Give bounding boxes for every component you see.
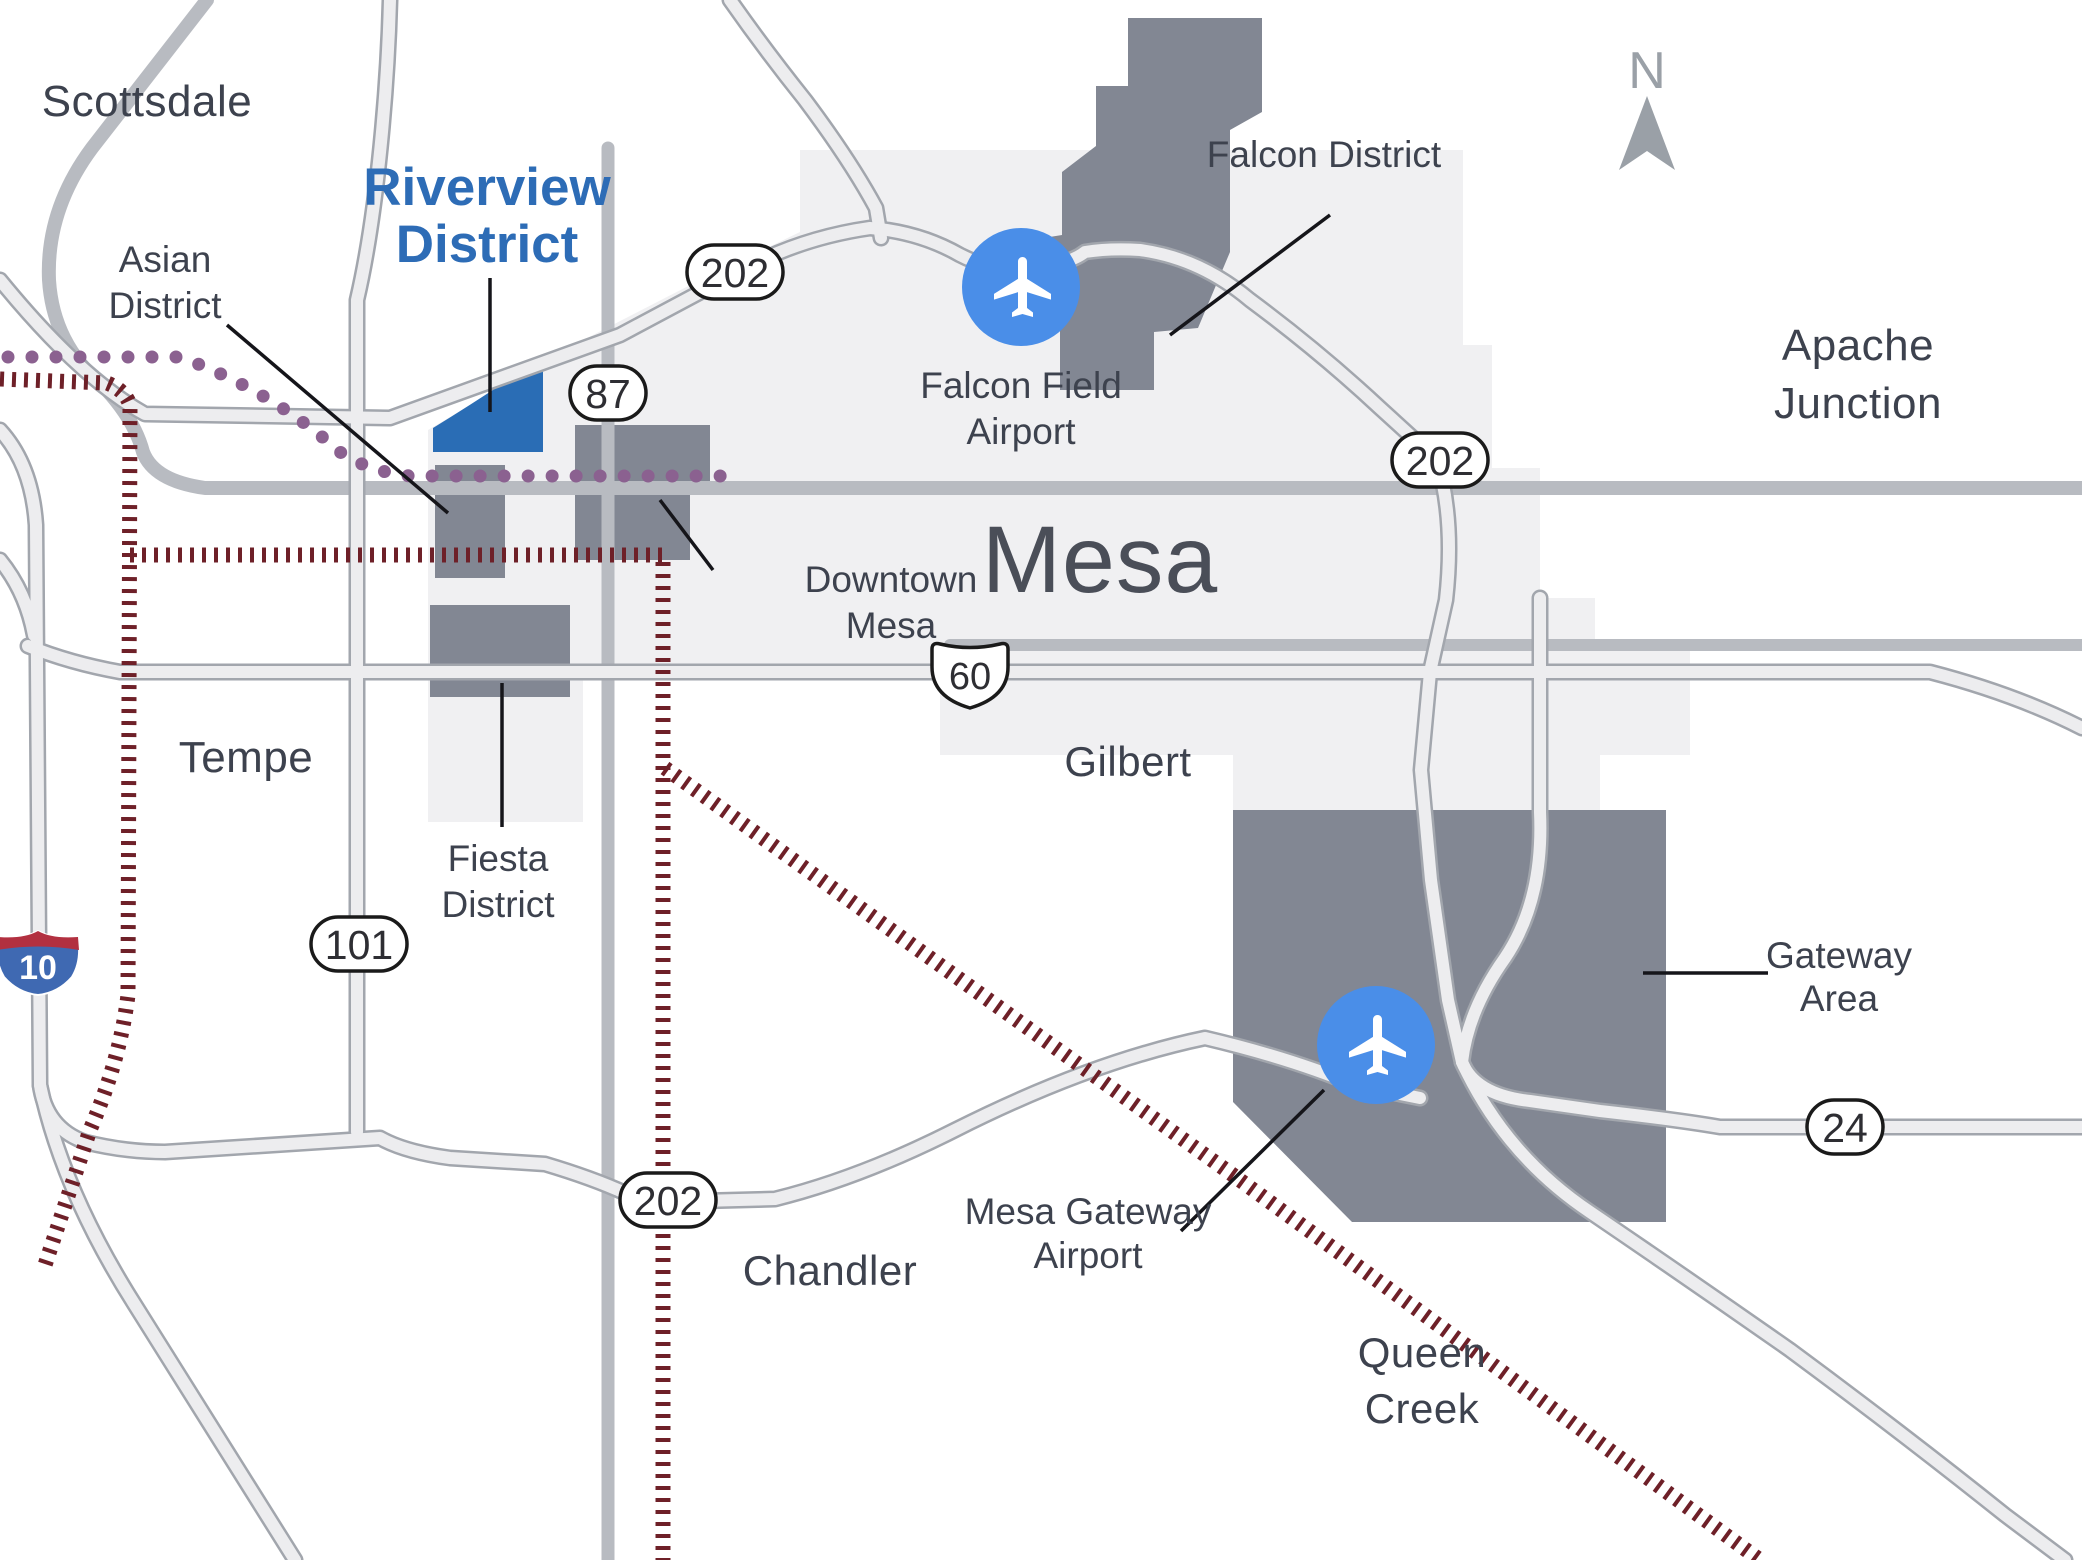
svg-text:87: 87 bbox=[585, 371, 631, 417]
city-label-queen-creek: Queen bbox=[1358, 1329, 1487, 1376]
district-label-downtown-2: Mesa bbox=[846, 605, 937, 646]
district-label-riverview: Riverview bbox=[363, 158, 611, 217]
district-label-fiesta: Fiesta bbox=[448, 838, 549, 879]
city-label-scottsdale: Scottsdale bbox=[42, 77, 252, 126]
route-shield-202-east: 202 bbox=[1392, 433, 1488, 487]
route-shield-i10: 10 bbox=[0, 931, 79, 995]
svg-text:202: 202 bbox=[701, 250, 769, 296]
map-canvas: 202 202 202 87 101 24 60 10 N Scottsdale… bbox=[0, 0, 2082, 1560]
city-label-apache-junction: Apache bbox=[1782, 321, 1934, 370]
city-label-mesa: Mesa bbox=[982, 507, 1218, 613]
svg-text:10: 10 bbox=[19, 949, 57, 987]
svg-text:60: 60 bbox=[949, 656, 991, 698]
city-label-chandler: Chandler bbox=[743, 1247, 917, 1294]
route-shield-101: 101 bbox=[311, 917, 407, 971]
svg-text:N: N bbox=[1628, 42, 1666, 100]
svg-text:24: 24 bbox=[1822, 1105, 1868, 1151]
svg-text:202: 202 bbox=[634, 1178, 702, 1224]
city-label-tempe: Tempe bbox=[179, 733, 314, 782]
airport-label-falcon-field: Falcon Field bbox=[920, 365, 1122, 406]
svg-text:202: 202 bbox=[1406, 438, 1474, 484]
district-label-fiesta-2: District bbox=[441, 884, 555, 925]
route-shield-202-red-mountain: 202 bbox=[687, 245, 783, 299]
airport-label-falcon-field-2: Airport bbox=[967, 411, 1077, 452]
district-label-downtown: Downtown bbox=[805, 559, 978, 600]
district-label-falcon: Falcon District bbox=[1207, 134, 1442, 175]
district-label-asian-2: District bbox=[108, 285, 222, 326]
district-label-gateway: Gateway bbox=[1766, 935, 1913, 976]
route-shield-87: 87 bbox=[570, 366, 646, 420]
airport-icon-falcon-field bbox=[962, 228, 1080, 346]
city-label-gilbert: Gilbert bbox=[1064, 738, 1191, 785]
route-shield-24: 24 bbox=[1807, 1100, 1883, 1154]
district-label-gateway-2: Area bbox=[1800, 978, 1879, 1019]
downtown-mesa-shape-south bbox=[575, 492, 690, 560]
mesa-district-map: 202 202 202 87 101 24 60 10 N Scottsdale… bbox=[0, 0, 2082, 1560]
north-arrow: N bbox=[1619, 42, 1675, 170]
airport-label-mesa-gateway-2: Airport bbox=[1034, 1235, 1144, 1276]
route-shield-202-santan: 202 bbox=[620, 1173, 716, 1227]
airport-label-mesa-gateway: Mesa Gateway bbox=[965, 1191, 1212, 1232]
district-label-asian: Asian bbox=[119, 239, 212, 280]
city-label-apache-junction-2: Junction bbox=[1774, 379, 1942, 428]
district-label-riverview-2: District bbox=[396, 215, 579, 274]
city-label-queen-creek-2: Creek bbox=[1365, 1385, 1480, 1432]
svg-text:101: 101 bbox=[325, 922, 393, 968]
airport-icon-mesa-gateway bbox=[1317, 986, 1435, 1104]
fiesta-district-shape bbox=[430, 605, 570, 697]
